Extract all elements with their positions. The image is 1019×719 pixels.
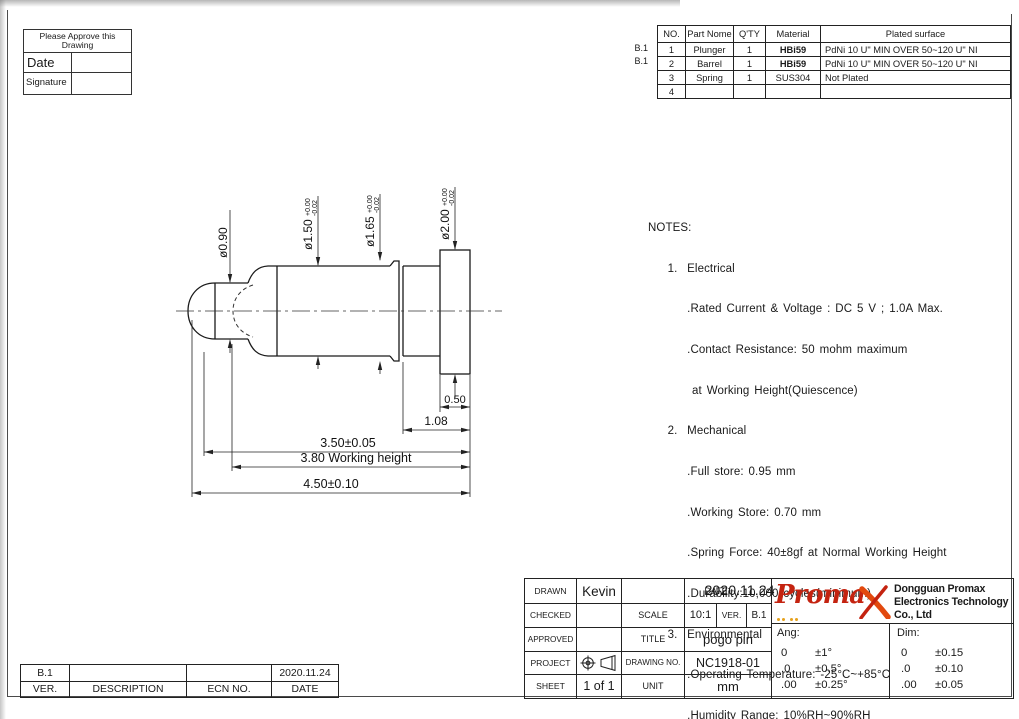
unit-value: mm xyxy=(685,674,771,698)
notes-line: .Rated Current & Voltage : DC 5 V ; 1.0A… xyxy=(648,303,1012,317)
tol-precision: 0 xyxy=(781,645,797,661)
company-name-line3: Co., Ltd xyxy=(894,609,1012,622)
date-value: 2020.11.24 xyxy=(708,579,771,603)
revision-table: B.1 2020.11.24 VER. DESCRIPTION ECN NO. … xyxy=(20,664,339,698)
dim-label-450: 4.50±0.10 xyxy=(303,477,359,491)
dim-label-dia-090: ø0.90 xyxy=(216,227,230,258)
sheet-value: 1 of 1 xyxy=(577,674,621,698)
company-name-line2: Electronics Technology xyxy=(894,596,1012,609)
drawing-sheet: Please Approve this Drawing Date Signatu… xyxy=(0,0,1019,719)
angle-tolerance-values: ±1° ±0.5° ±0.25° xyxy=(815,645,848,693)
scale-value: 10:1 xyxy=(685,603,716,627)
title-value: pogo pin xyxy=(685,627,771,651)
svg-text:-0.02: -0.02 xyxy=(449,190,456,206)
tol-value: ±0.15 xyxy=(935,645,963,661)
tol-value: ±0.10 xyxy=(935,661,963,677)
title-label: TITLE xyxy=(622,627,684,651)
notes-line: .Full store: 0.95 mm xyxy=(648,466,1012,480)
drawn-value: Kevin xyxy=(577,579,621,603)
svg-text:+0.00: +0.00 xyxy=(442,188,449,206)
notes-line: .Spring Force: 40±8gf at Normal Working … xyxy=(648,547,1012,561)
revision-ver-label: VER. xyxy=(21,681,69,697)
notes-line: 2. Mechanical xyxy=(648,425,1012,439)
logo-swoosh-icon xyxy=(859,585,891,619)
projection-symbol xyxy=(577,651,621,674)
barrel-top xyxy=(248,266,390,283)
drawing-no-label: DRAWING NO. xyxy=(622,651,684,674)
notes-line: .Contact Resistance: 50 mohm maximum xyxy=(648,344,1012,358)
dim-label-dia-200: ø2.00 +0.00 -0.02 xyxy=(438,188,456,240)
angle-tolerance-label: Ang: xyxy=(777,627,800,639)
ver-value: B.1 xyxy=(747,603,771,627)
checked-value xyxy=(577,603,621,627)
notes-line: NOTES: xyxy=(648,222,1012,236)
svg-text:+0.00: +0.00 xyxy=(367,195,374,213)
svg-text:ø0.90: ø0.90 xyxy=(216,227,230,258)
tol-value: ±0.05 xyxy=(935,677,963,693)
dim-label-dia-150: ø1.50 +0.00 -0.02 xyxy=(301,198,319,250)
tol-value: ±0.25° xyxy=(815,677,848,693)
notes-line: at Working Height(Quiescence) xyxy=(648,385,1012,399)
ver-label: VER. xyxy=(717,603,746,627)
revision-date-label: DATE xyxy=(272,681,338,697)
unit-label: UNIT xyxy=(622,674,684,698)
svg-text:ø1.50: ø1.50 xyxy=(301,219,315,250)
dim-tolerance-precisions: 0 .0 .00 xyxy=(901,645,917,693)
drawing-no-value: NC1918-01 xyxy=(685,651,771,674)
revision-ver: B.1 xyxy=(21,665,69,681)
tol-value: ±0.5° xyxy=(815,661,848,677)
title-block: DRAWN Kevin DATE 2020.11.24 CHECKED SCAL… xyxy=(524,578,1014,699)
logo-wordmark: Proma xyxy=(775,580,865,610)
svg-text:+0.00: +0.00 xyxy=(305,198,312,216)
first-angle-projection-icon xyxy=(580,654,618,672)
approved-label: APPROVED xyxy=(525,627,576,651)
tol-precision: 0 xyxy=(901,645,917,661)
sheet-label: SHEET xyxy=(525,674,576,698)
svg-text:-0.02: -0.02 xyxy=(374,197,381,213)
angle-tolerance-precisions: 0 .0 .00 xyxy=(781,645,797,693)
scale-label: SCALE xyxy=(622,603,684,627)
dim-label-380-working-height: 3.80 Working height xyxy=(301,451,412,465)
drawn-label: DRAWN xyxy=(525,579,576,603)
notes-line: .Working Store: 0.70 mm xyxy=(648,507,1012,521)
tol-precision: .0 xyxy=(781,661,797,677)
dim-tolerance-values: ±0.15 ±0.10 ±0.05 xyxy=(935,645,963,693)
logo-dots xyxy=(777,613,800,623)
barrel-bottom xyxy=(248,339,390,356)
dim-label-050: 0.50 xyxy=(444,394,465,406)
svg-text:-0.02: -0.02 xyxy=(312,200,319,216)
promax-logo: Proma xyxy=(775,582,893,622)
tol-precision: .00 xyxy=(901,677,917,693)
dim-label-108: 1.08 xyxy=(424,414,448,428)
revision-ecn xyxy=(187,665,271,681)
project-label: PROJECT xyxy=(525,651,576,674)
approved-value xyxy=(577,627,621,651)
revision-description xyxy=(70,665,186,681)
svg-text:ø2.00: ø2.00 xyxy=(438,209,452,240)
checked-label: CHECKED xyxy=(525,603,576,627)
dim-label-350: 3.50±0.05 xyxy=(320,436,376,450)
tol-precision: .00 xyxy=(781,677,797,693)
company-name: Dongguan Promax Electronics Technology C… xyxy=(894,583,1012,622)
revision-date: 2020.11.24 xyxy=(272,665,338,681)
tol-precision: .0 xyxy=(901,661,917,677)
revision-ecn-label: ECN NO. xyxy=(187,681,271,697)
notes-line: 1. Electrical xyxy=(648,263,1012,277)
dim-label-dia-165: ø1.65 +0.00 -0.02 xyxy=(363,195,381,247)
notes-line: .Humidity Range: 10%RH~90%RH xyxy=(648,710,1012,719)
company-name-line1: Dongguan Promax xyxy=(894,583,1012,596)
svg-text:ø1.65: ø1.65 xyxy=(363,216,377,247)
tol-value: ±1° xyxy=(815,645,848,661)
flange xyxy=(440,250,470,374)
revision-description-label: DESCRIPTION xyxy=(70,681,186,697)
dim-tolerance-label: Dim: xyxy=(897,627,920,639)
